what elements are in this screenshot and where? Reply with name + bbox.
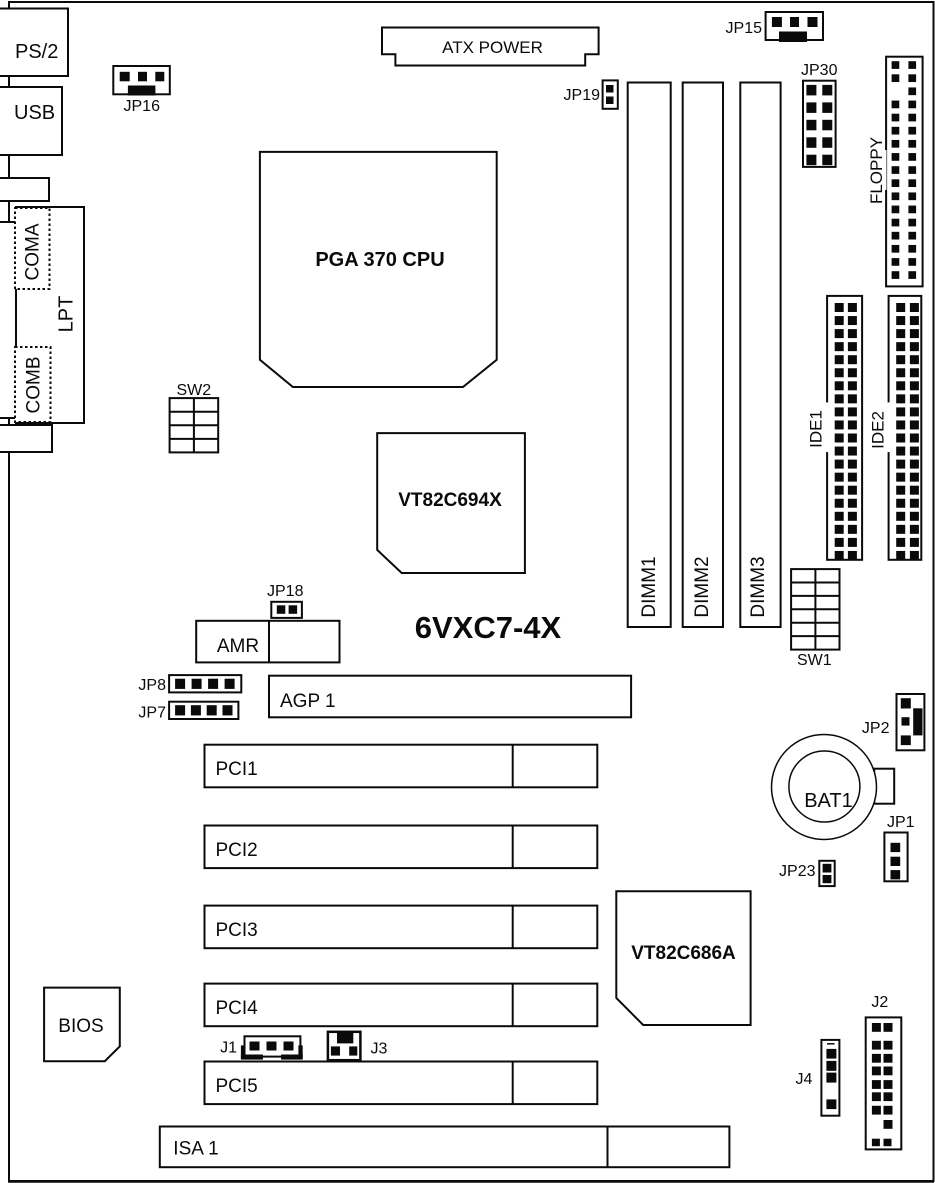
svg-text:BIOS: BIOS <box>58 1016 103 1037</box>
svg-text:USB: USB <box>14 102 55 124</box>
svg-text:LPT: LPT <box>56 296 78 333</box>
svg-text:AMR: AMR <box>217 636 259 657</box>
svg-text:BAT1: BAT1 <box>804 790 853 812</box>
svg-text:JP19: JP19 <box>564 87 601 104</box>
svg-text:SW2: SW2 <box>177 382 212 399</box>
svg-text:VT82C694X: VT82C694X <box>398 490 502 511</box>
svg-text:ISA 1: ISA 1 <box>173 1139 218 1160</box>
svg-text:PCI3: PCI3 <box>216 920 258 941</box>
svg-text:FLOPPY: FLOPPY <box>867 137 886 204</box>
svg-text:PCI4: PCI4 <box>216 998 259 1019</box>
svg-text:PCI1: PCI1 <box>216 759 258 780</box>
svg-text:PGA 370 CPU: PGA 370 CPU <box>315 249 444 271</box>
svg-text:JP2: JP2 <box>862 720 890 737</box>
svg-text:6VXC7-4X: 6VXC7-4X <box>415 610 562 645</box>
svg-text:JP16: JP16 <box>124 98 161 115</box>
svg-text:JP8: JP8 <box>138 677 166 694</box>
svg-text:SW1: SW1 <box>797 652 832 669</box>
svg-text:ATX POWER: ATX POWER <box>442 38 543 57</box>
svg-text:JP30: JP30 <box>801 62 838 79</box>
svg-text:JP7: JP7 <box>138 705 166 722</box>
svg-text:DIMM1: DIMM1 <box>639 556 660 617</box>
svg-text:DIMM2: DIMM2 <box>692 556 713 617</box>
svg-text:PS/2: PS/2 <box>15 41 58 63</box>
svg-text:JP1: JP1 <box>887 814 915 831</box>
svg-text:AGP 1: AGP 1 <box>280 691 336 712</box>
svg-text:J1: J1 <box>220 1040 237 1057</box>
svg-text:J4: J4 <box>795 1071 812 1088</box>
svg-text:VT82C686A: VT82C686A <box>631 943 736 964</box>
svg-text:IDE2: IDE2 <box>869 411 888 449</box>
svg-text:PCI2: PCI2 <box>216 840 258 861</box>
svg-text:JP15: JP15 <box>726 20 763 37</box>
svg-text:PCI5: PCI5 <box>216 1076 258 1097</box>
svg-text:IDE1: IDE1 <box>807 410 826 448</box>
svg-text:COMA: COMA <box>23 223 44 280</box>
svg-text:JP23: JP23 <box>779 863 816 880</box>
svg-text:J2: J2 <box>871 994 888 1011</box>
svg-text:COMB: COMB <box>24 357 45 414</box>
svg-text:J3: J3 <box>371 1041 388 1058</box>
svg-text:JP18: JP18 <box>267 583 304 600</box>
svg-text:DIMM3: DIMM3 <box>748 556 769 617</box>
